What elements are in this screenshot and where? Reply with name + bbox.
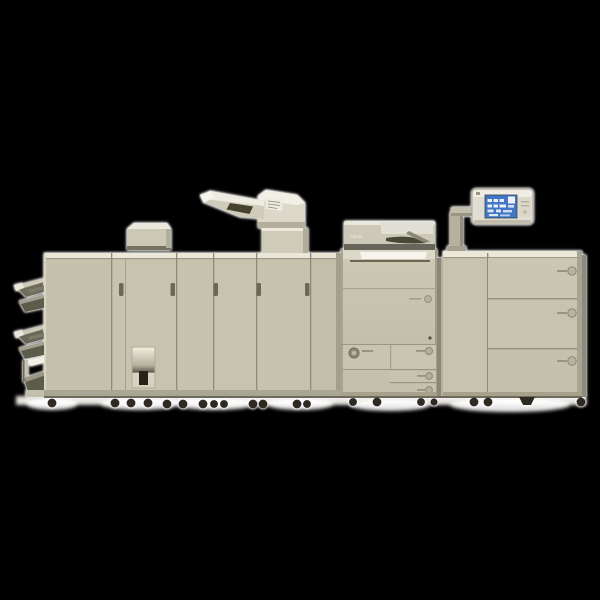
svg-text:Canon: Canon <box>350 234 363 239</box>
